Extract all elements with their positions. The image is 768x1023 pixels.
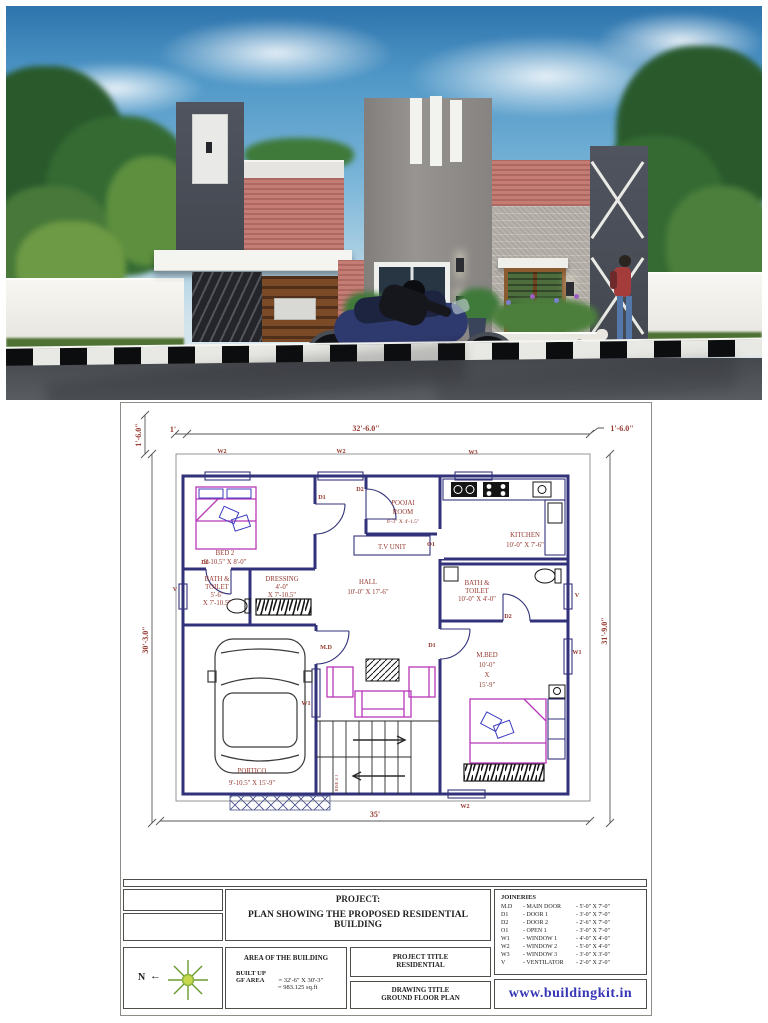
room-labels: BED 2 9'-10.5" X 8'-0" BATH & TOILET 5'-… — [203, 500, 544, 787]
svg-text:15'-9": 15'-9" — [479, 682, 496, 689]
joinery-row: M.D- MAIN DOOR- 5'-0" X 7'-0" — [501, 903, 642, 911]
svg-text:1': 1' — [170, 425, 176, 434]
flower — [530, 294, 535, 299]
svg-text:D2: D2 — [504, 613, 512, 620]
red-texture-wall-left — [244, 178, 344, 260]
pedestrian-backpack — [610, 271, 617, 289]
joinery-row: O1- OPEN 1- 3'-0" X 7'-0" — [501, 927, 642, 935]
joinery-row: W1- WINDOW 1- 4'-0" X 4'-0" — [501, 935, 642, 943]
joinery-name: - WINDOW 2 — [523, 943, 576, 951]
flower — [506, 300, 511, 305]
joinery-size: - 3'-0" X 3'-0" — [576, 951, 642, 959]
joinery-row: D2- DOOR 2- 2'-6" X 7'-0" — [501, 919, 642, 927]
joinery-name: - WINDOW 1 — [523, 935, 576, 943]
kitchen-counter — [443, 479, 565, 555]
svg-text:ROOM: ROOM — [393, 509, 413, 516]
joinery-name: - WINDOW 3 — [523, 951, 576, 959]
project-title-value: RESIDENTIAL — [351, 961, 490, 969]
drawing-sheet: RISE # 1 32'-6.0" — [120, 402, 652, 1016]
svg-text:30'-3.0": 30'-3.0" — [141, 626, 150, 653]
site-boundary — [176, 454, 590, 801]
svg-text:M.D: M.D — [320, 644, 332, 651]
joinery-code: W1 — [501, 935, 523, 943]
page: RISE # 1 32'-6.0" — [0, 0, 768, 1023]
svg-text:W3: W3 — [468, 449, 477, 456]
north-arrow-box: N ← — [123, 947, 223, 1009]
svg-text:W2: W2 — [217, 448, 226, 455]
project-title-box: PROJECT TITLE RESIDENTIAL — [350, 947, 491, 977]
dog-head — [596, 329, 608, 340]
svg-text:HALL: HALL — [359, 579, 377, 586]
project-name: PLAN SHOWING THE PROPOSED RESIDENTIAL — [226, 910, 490, 920]
svg-text:W1: W1 — [572, 649, 581, 656]
project-name-line2: BUILDING — [226, 920, 490, 930]
svg-text:D2: D2 — [356, 486, 364, 493]
joinery-name: - DOOR 2 — [523, 919, 576, 927]
svg-text:W2: W2 — [336, 448, 345, 455]
svg-text:X 7'-10.5": X 7'-10.5" — [203, 600, 231, 607]
facade-stripe — [410, 98, 422, 164]
svg-text:10'-0" X 7'-6": 10'-0" X 7'-6" — [506, 542, 544, 549]
north-star-icon — [166, 958, 210, 1002]
drawing-title-value: GROUND FLOOR PLAN — [351, 994, 490, 1002]
svg-text:6'-3" X 4'-1.5": 6'-3" X 4'-1.5" — [387, 519, 420, 525]
area-heading: AREA OF THE BUILDING — [226, 954, 346, 962]
project-heading: PROJECT: — [226, 894, 490, 904]
svg-text:D1: D1 — [428, 642, 436, 649]
red-texture-band-right — [492, 160, 590, 206]
area-box: AREA OF THE BUILDING BUILT UP GF AREA = … — [225, 947, 347, 1009]
project-box: PROJECT: PLAN SHOWING THE PROPOSED RESID… — [225, 889, 491, 941]
mbed-furniture — [470, 685, 565, 763]
joinery-code: D2 — [501, 919, 523, 927]
joinery-code: D1 — [501, 911, 523, 919]
svg-text:10'-0" X 4'-0": 10'-0" X 4'-0" — [458, 596, 496, 603]
joinery-row: D1- DOOR 1- 3'-0" X 7'-0" — [501, 911, 642, 919]
elevation-render-photo — [6, 6, 762, 400]
pedestrian-head — [619, 255, 631, 267]
svg-text:V: V — [575, 592, 580, 599]
north-arrow: ← — [150, 970, 161, 982]
joineries-heading: JOINERIES — [501, 894, 642, 901]
hall-furniture — [327, 659, 435, 717]
svg-text:BATH &: BATH & — [205, 576, 230, 583]
svg-text:X 7'-10.5": X 7'-10.5" — [268, 592, 296, 599]
wall-openings — [206, 489, 530, 664]
joinery-size: - 4'-0" X 4'-0" — [576, 935, 642, 943]
joinery-size: - 2'-0" X 2'-0" — [576, 959, 642, 967]
terrace-parapet — [244, 160, 344, 180]
website-link[interactable]: www.buildingkit.in — [509, 986, 632, 1002]
svg-text:10'-0" X 17'-6": 10'-0" X 17'-6" — [347, 589, 388, 596]
svg-text:X: X — [485, 672, 490, 679]
joinery-size: - 3'-0" X 7'-0" — [576, 927, 642, 935]
svg-text:PORTICO: PORTICO — [238, 768, 267, 775]
drawing-title-box: DRAWING TITLE GROUND FLOOR PLAN — [350, 981, 491, 1009]
svg-text:9'-10.5" X 15'-9": 9'-10.5" X 15'-9" — [229, 780, 276, 787]
svg-text:T.V UNIT: T.V UNIT — [378, 544, 407, 551]
svg-text:KITCHEN: KITCHEN — [510, 532, 540, 539]
joinery-name: - OPEN 1 — [523, 927, 576, 935]
svg-text:W1: W1 — [301, 700, 310, 707]
gf-area-total: = 983.125 sq.ft — [278, 984, 346, 991]
svg-text:DRESSING: DRESSING — [265, 576, 298, 583]
joinery-name: - DOOR 1 — [523, 911, 576, 919]
joinery-row: V- VENTILATOR- 2'-0" X 2'-0" — [501, 959, 642, 967]
drawing-title-label: DRAWING TITLE — [351, 986, 490, 994]
svg-text:BED 2: BED 2 — [216, 550, 235, 557]
svg-text:5'-6": 5'-6" — [210, 592, 223, 599]
gate-name-plate — [274, 298, 316, 320]
joinery-code: V — [501, 959, 523, 967]
gf-area-value: = 32'-6" X 30'-3" — [278, 977, 323, 984]
porch-canopy — [154, 250, 352, 271]
window-lintel — [498, 258, 568, 268]
joinery-size: - 2'-6" X 7'-0" — [576, 919, 642, 927]
svg-text:TOILET: TOILET — [465, 588, 490, 595]
built-up-label: BUILT UP — [236, 970, 346, 977]
svg-text:BATH &: BATH & — [465, 580, 490, 587]
svg-text:35': 35' — [370, 810, 380, 819]
svg-text:M.BED: M.BED — [476, 652, 497, 659]
revision-box-1 — [123, 889, 223, 911]
svg-text:1'-6.0": 1'-6.0" — [610, 424, 633, 433]
svg-text:D1: D1 — [318, 494, 326, 501]
joinery-row: W3- WINDOW 3- 3'-0" X 3'-0" — [501, 951, 642, 959]
title-block-top-strip — [123, 879, 647, 887]
wall-sconce — [566, 282, 574, 296]
opening-labels: W2 W2 W3 W2 D1 D2 D2 D2 D1 M.D O1 V V W1… — [173, 448, 582, 810]
walls — [183, 476, 568, 794]
joinery-name: - MAIN DOOR — [523, 903, 576, 911]
gf-area-label: GF AREA — [236, 977, 264, 984]
svg-text:O1: O1 — [427, 541, 435, 548]
flower — [574, 294, 579, 299]
joineries-box: JOINERIES M.D- MAIN DOOR- 5'-0" X 7'-0" … — [494, 889, 647, 975]
joinery-code: O1 — [501, 927, 523, 935]
svg-text:TOILET: TOILET — [205, 584, 230, 591]
svg-text:9'-10.5" X 8'-0": 9'-10.5" X 8'-0" — [204, 559, 247, 566]
joinery-size: - 5'-0" X 4'-0" — [576, 943, 642, 951]
floor-plan-svg: RISE # 1 32'-6.0" — [121, 403, 651, 879]
joinery-size: - 3'-0" X 7'-0" — [576, 911, 642, 919]
stair-label: RISE # 1 — [334, 774, 339, 792]
facade-stripe — [430, 96, 442, 166]
svg-text:1'-6.0": 1'-6.0" — [134, 423, 143, 446]
website-box: www.buildingkit.in — [494, 979, 647, 1009]
entrance-gate-grille — [192, 272, 262, 342]
svg-text:32'-6.0": 32'-6.0" — [352, 424, 379, 433]
bed2-furniture — [196, 487, 256, 549]
driveway-gate — [230, 796, 330, 810]
tower-lamp — [206, 142, 212, 153]
joinery-code: M.D — [501, 903, 523, 911]
joinery-code: W2 — [501, 943, 523, 951]
joinery-row: W2- WINDOW 2- 5'-0" X 4'-0" — [501, 943, 642, 951]
project-title-label: PROJECT TITLE — [351, 953, 490, 961]
svg-text:POOJAI: POOJAI — [391, 500, 415, 507]
wall-sconce — [456, 258, 464, 272]
svg-text:4'-0": 4'-0" — [275, 584, 288, 591]
svg-text:31'-9.0": 31'-9.0" — [600, 617, 609, 644]
flower — [554, 298, 559, 303]
svg-text:V: V — [173, 586, 178, 593]
joinery-name: - VENTILATOR — [523, 959, 576, 967]
svg-text:W2: W2 — [460, 803, 469, 810]
facade-stripe — [450, 100, 462, 162]
revision-box-2 — [123, 913, 223, 941]
joinery-size: - 5'-0" X 7'-0" — [576, 903, 642, 911]
joinery-code: W3 — [501, 951, 523, 959]
svg-text:10'-0": 10'-0" — [479, 662, 496, 669]
north-label: N — [138, 972, 145, 983]
car — [208, 639, 312, 773]
